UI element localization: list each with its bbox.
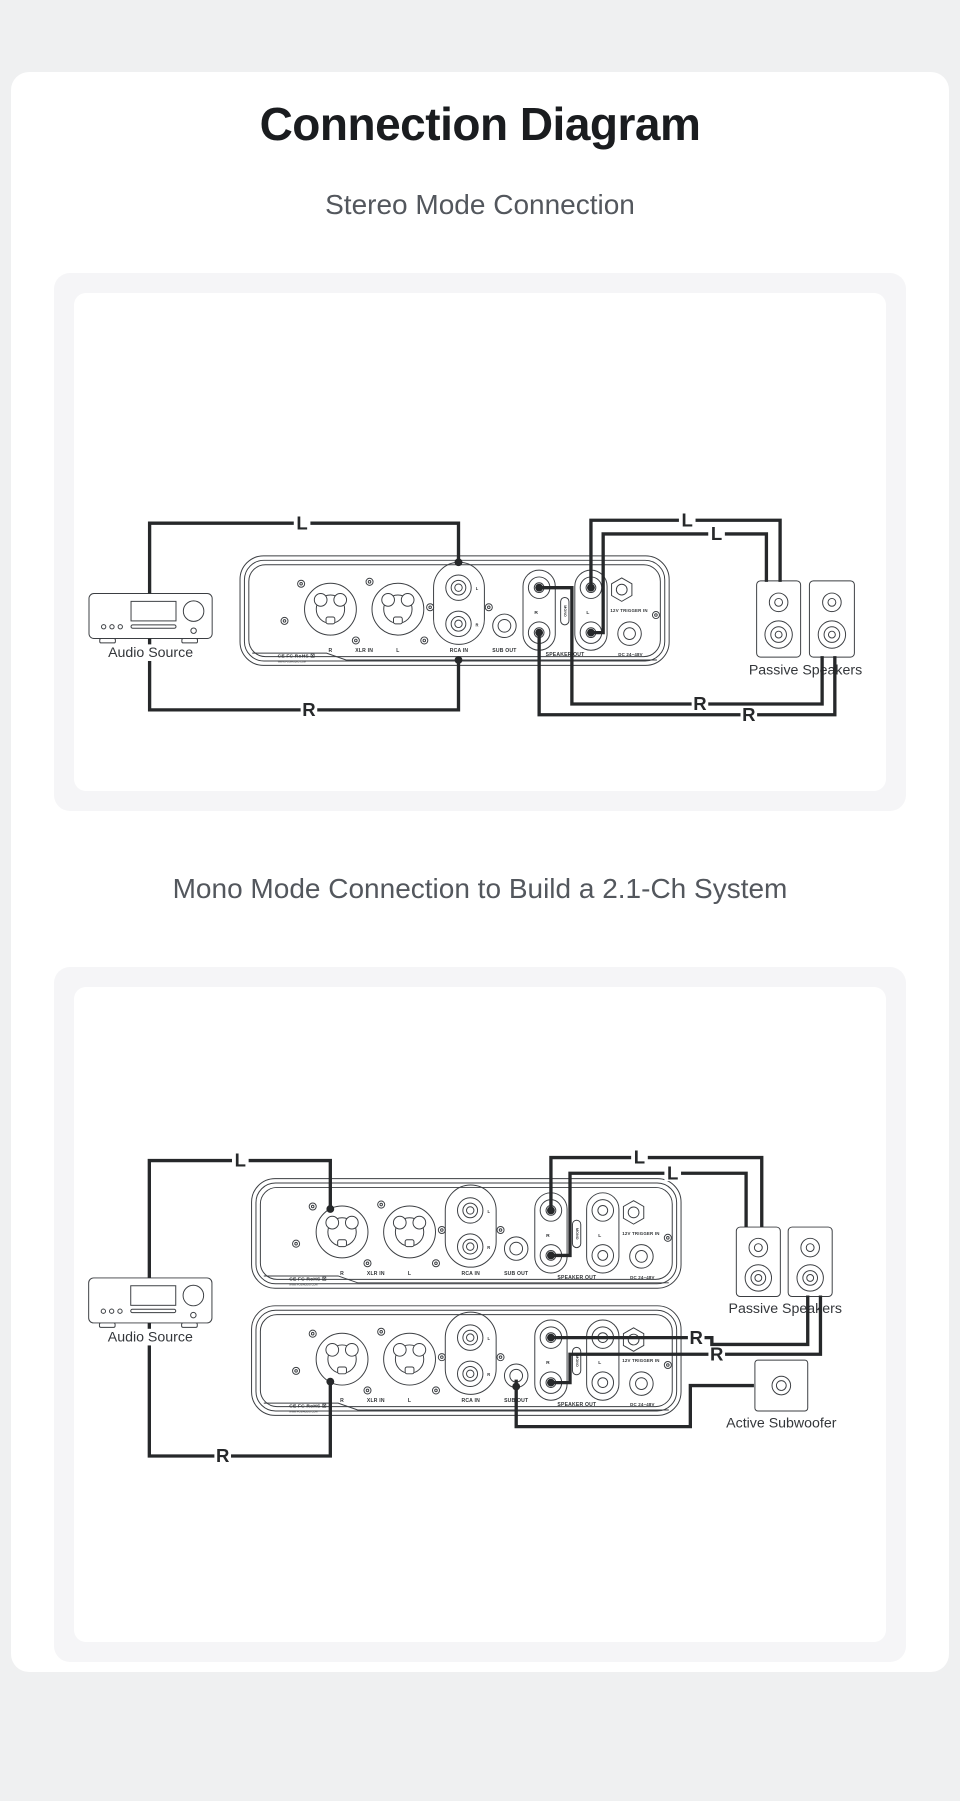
audio-source-label: Audio Source: [106, 1329, 194, 1346]
wire-label-r-out-1: R: [688, 1327, 705, 1348]
connection-dot: [455, 656, 463, 664]
wire-label-l-out-2: L: [708, 523, 725, 544]
active-subwoofer-device: [755, 1360, 808, 1411]
connection-dot: [535, 584, 543, 592]
connection-dot: [326, 1378, 334, 1386]
passive-speakers-label: Passive Speakers: [749, 663, 862, 679]
svg-text:L: L: [682, 509, 693, 530]
stereo-diagram-canvas: R XLR IN L: [74, 293, 886, 791]
connection-dot: [455, 558, 463, 566]
svg-text:R: R: [710, 1344, 724, 1365]
svg-text:R: R: [689, 1327, 703, 1348]
wire-label-l-out-1: L: [631, 1147, 648, 1168]
connection-dot: [512, 1383, 520, 1391]
connection-dot: [587, 629, 595, 637]
wire-label-r-in: R: [214, 1445, 231, 1466]
passive-speaker-right: [809, 581, 854, 657]
passive-speakers-label: Passive Speakers: [729, 1301, 842, 1317]
passive-speaker-left: [757, 581, 801, 657]
svg-text:R: R: [216, 1445, 230, 1466]
wire-label-r-in: R: [301, 699, 318, 720]
svg-text:L: L: [634, 1147, 645, 1168]
connection-dot: [535, 629, 543, 637]
audio-source-label: Audio Source: [107, 644, 195, 661]
mono-connection-diagram: Passive Speakers Active Subwoofer: [74, 1133, 886, 1642]
svg-text:L: L: [235, 1150, 246, 1171]
svg-text:Audio Source: Audio Source: [108, 1330, 193, 1346]
section-heading-stereo: Stereo Mode Connection: [11, 189, 949, 221]
svg-text:L: L: [667, 1163, 678, 1184]
wire-label-r-out-2: R: [708, 1344, 725, 1365]
connection-dot: [547, 1207, 555, 1215]
wire-label-l-in: L: [232, 1150, 249, 1171]
amp-panel-top: [252, 1179, 681, 1289]
connection-dot: [326, 1205, 334, 1213]
amp-panel-bottom: [252, 1306, 681, 1416]
connection-dot: [547, 1334, 555, 1342]
audio-source-device: [89, 594, 212, 643]
connection-dot: [587, 584, 595, 592]
svg-text:L: L: [296, 512, 307, 533]
wire-label-r-out-2: R: [741, 704, 758, 725]
stereo-diagram-panel: R XLR IN L: [54, 273, 906, 811]
mono-diagram-panel: Passive Speakers Active Subwoofer: [54, 967, 906, 1662]
passive-speaker-right: [788, 1227, 832, 1296]
svg-text:R: R: [302, 699, 316, 720]
main-card: Connection Diagram Stereo Mode Connectio…: [11, 72, 949, 1672]
connection-dot: [547, 1379, 555, 1387]
wire-label-l-out-1: L: [679, 509, 696, 530]
svg-text:R: R: [693, 693, 707, 714]
mono-diagram-canvas: Passive Speakers Active Subwoofer: [74, 987, 886, 1642]
wire-label-l-in: L: [294, 512, 311, 533]
audio-source-device: [89, 1278, 212, 1327]
page: Connection Diagram Stereo Mode Connectio…: [0, 0, 960, 1801]
svg-text:L: L: [711, 523, 722, 544]
page-title: Connection Diagram: [11, 98, 949, 151]
section-heading-mono: Mono Mode Connection to Build a 2.1-Ch S…: [11, 873, 949, 905]
wire-label-r-out-1: R: [692, 693, 709, 714]
svg-text:R: R: [742, 704, 756, 725]
stereo-connection-diagram: R XLR IN L: [74, 400, 886, 791]
passive-speaker-left: [736, 1227, 780, 1296]
active-subwoofer-label: Active Subwoofer: [726, 1416, 837, 1432]
wire-label-l-out-2: L: [664, 1163, 681, 1184]
svg-text:Audio Source: Audio Source: [108, 645, 193, 661]
connection-dot: [547, 1252, 555, 1260]
